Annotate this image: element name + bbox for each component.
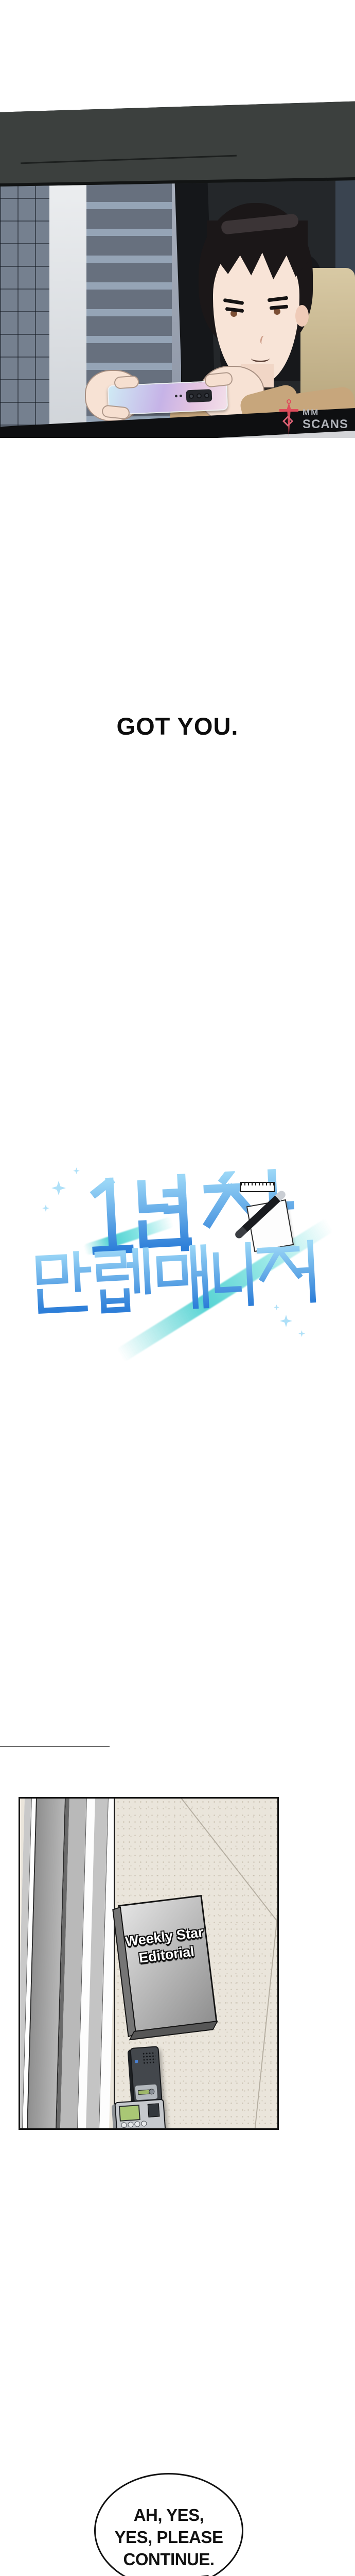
panel-door-scene: Weekly Star Editorial <box>19 1797 279 2130</box>
camera-lens-icon <box>197 393 202 398</box>
call-button <box>149 2089 155 2095</box>
sparkle-icon <box>42 1205 49 1212</box>
finger <box>114 375 139 389</box>
camera-lens-icon <box>204 393 209 398</box>
keypad-button <box>128 2122 134 2128</box>
divider-line <box>0 1746 110 1747</box>
camera-lens-icon <box>189 394 194 399</box>
sparkle-icon <box>280 1315 292 1327</box>
sparkle-icon <box>274 1304 279 1310</box>
sparkle-icon <box>73 1167 80 1174</box>
scanlation-emblem-icon <box>278 401 299 438</box>
keypad-screen <box>119 2105 140 2122</box>
bubble-line: CONTINUE. <box>96 2549 242 2571</box>
phone-sensor-dot <box>175 395 177 397</box>
bubble-line: YES, PLEASE <box>96 2527 242 2549</box>
building-facade <box>0 175 49 438</box>
bubble-line: AH, YES, <box>96 2504 242 2527</box>
webtoon-page: MM SCANS GOT YOU. <box>0 0 355 2576</box>
character-mouth <box>251 354 270 362</box>
series-logo <box>0 1154 355 1463</box>
card-slot <box>148 2103 160 2117</box>
watermark-text: MM <box>303 408 348 417</box>
caption-got-you: GOT YOU. <box>0 712 355 740</box>
wall-seam <box>253 1861 279 2130</box>
building-pillar <box>49 175 86 438</box>
intercom-device <box>130 2046 162 2104</box>
speaker-grille-icon <box>142 2052 156 2065</box>
sparkle-icon <box>51 1181 66 1195</box>
door-keypad-device <box>114 2099 166 2130</box>
phone-camera-module <box>186 389 212 402</box>
notebook-edge-icon <box>240 1182 275 1192</box>
keypad-button <box>121 2122 127 2128</box>
sparkle-icon <box>298 1330 305 1337</box>
speech-bubble-tail <box>186 2574 222 2576</box>
keypad-button <box>134 2121 140 2127</box>
glass-door-frame <box>19 1799 118 2128</box>
keypad-keys <box>120 2128 154 2130</box>
watermark-text: SCANS <box>303 418 348 431</box>
logo-line2-hangul <box>33 1238 325 1317</box>
intercom-panel <box>135 2084 157 2100</box>
panel-car-scene: MM SCANS <box>0 98 355 438</box>
keypad-button <box>141 2121 147 2127</box>
company-sign: Weekly Star Editorial <box>118 1895 217 2033</box>
car-roof <box>0 98 355 187</box>
scanlation-watermark: MM SCANS <box>278 401 348 438</box>
character-ear <box>295 305 309 327</box>
speech-bubble-continue: AH, YES, YES, PLEASE CONTINUE. <box>94 2473 243 2576</box>
phone-sensor-dot <box>180 395 182 397</box>
led-indicator <box>135 2060 138 2063</box>
